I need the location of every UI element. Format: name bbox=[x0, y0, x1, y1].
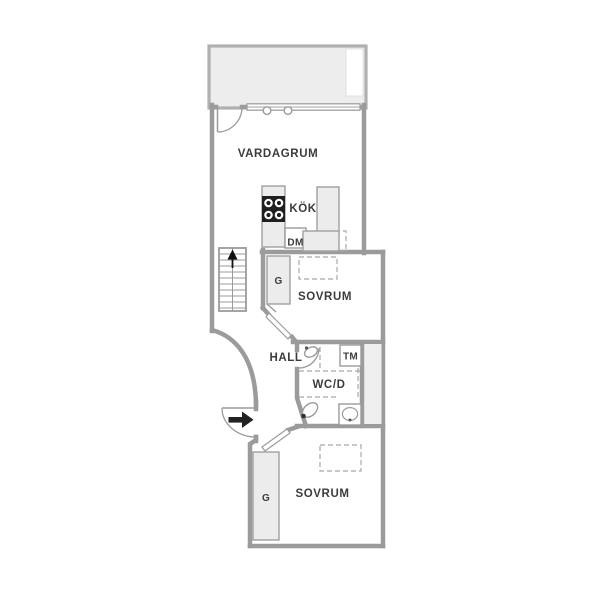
label-wardrobe-upper: G bbox=[274, 276, 282, 287]
stove-icon bbox=[262, 196, 285, 222]
exterior-walls bbox=[212, 105, 383, 546]
label-hall: HALL bbox=[269, 352, 302, 364]
labels: VARDAGRUM KÖK DM SOVRUM G HALL WC/D TM S… bbox=[238, 148, 358, 504]
livingroom-door bbox=[218, 107, 243, 132]
door-arc bbox=[218, 107, 243, 132]
label-bedroom-upper: SOVRUM bbox=[298, 291, 352, 303]
shower-icon bbox=[339, 404, 361, 425]
window-vent-icon bbox=[284, 107, 292, 115]
bedroom1-door-leaf bbox=[266, 313, 291, 339]
balcony-outline bbox=[209, 46, 366, 108]
kitchen bbox=[262, 186, 346, 251]
label-dishwasher: DM bbox=[287, 238, 303, 249]
staircase bbox=[219, 248, 246, 311]
furniture-dashed-outline bbox=[299, 257, 337, 279]
label-kitchen: KÖK bbox=[289, 202, 316, 215]
wall-bedroom2-door-stub bbox=[288, 427, 297, 430]
bedroom2-door-leaf bbox=[262, 429, 290, 451]
floor-plan-canvas: VARDAGRUM KÖK DM SOVRUM G HALL WC/D TM S… bbox=[0, 0, 600, 600]
duct-shaft bbox=[365, 344, 382, 424]
label-washing-machine: TM bbox=[343, 352, 358, 363]
toilet-icon bbox=[300, 400, 321, 420]
window-vent-icon bbox=[263, 107, 271, 115]
sink-faucet-dot bbox=[305, 346, 308, 349]
label-bathroom: WC/D bbox=[312, 379, 345, 391]
balcony bbox=[209, 46, 366, 108]
floor-plan: VARDAGRUM KÖK DM SOVRUM G HALL WC/D TM S… bbox=[0, 0, 600, 600]
entrance bbox=[222, 408, 256, 437]
label-bedroom-lower: SOVRUM bbox=[295, 488, 349, 500]
kitchen-counter-right bbox=[317, 187, 339, 233]
window-band bbox=[247, 104, 360, 115]
wall-stairwell-curve bbox=[212, 330, 256, 404]
entrance-arrow-icon bbox=[229, 412, 254, 429]
balcony-inset bbox=[346, 49, 363, 96]
label-wardrobe-lower: G bbox=[262, 493, 270, 504]
furniture-dashed-outline bbox=[320, 445, 361, 471]
label-living-room: VARDAGRUM bbox=[238, 148, 319, 160]
bedroom-lower bbox=[253, 429, 361, 540]
kitchen-counter-lower bbox=[303, 231, 339, 251]
